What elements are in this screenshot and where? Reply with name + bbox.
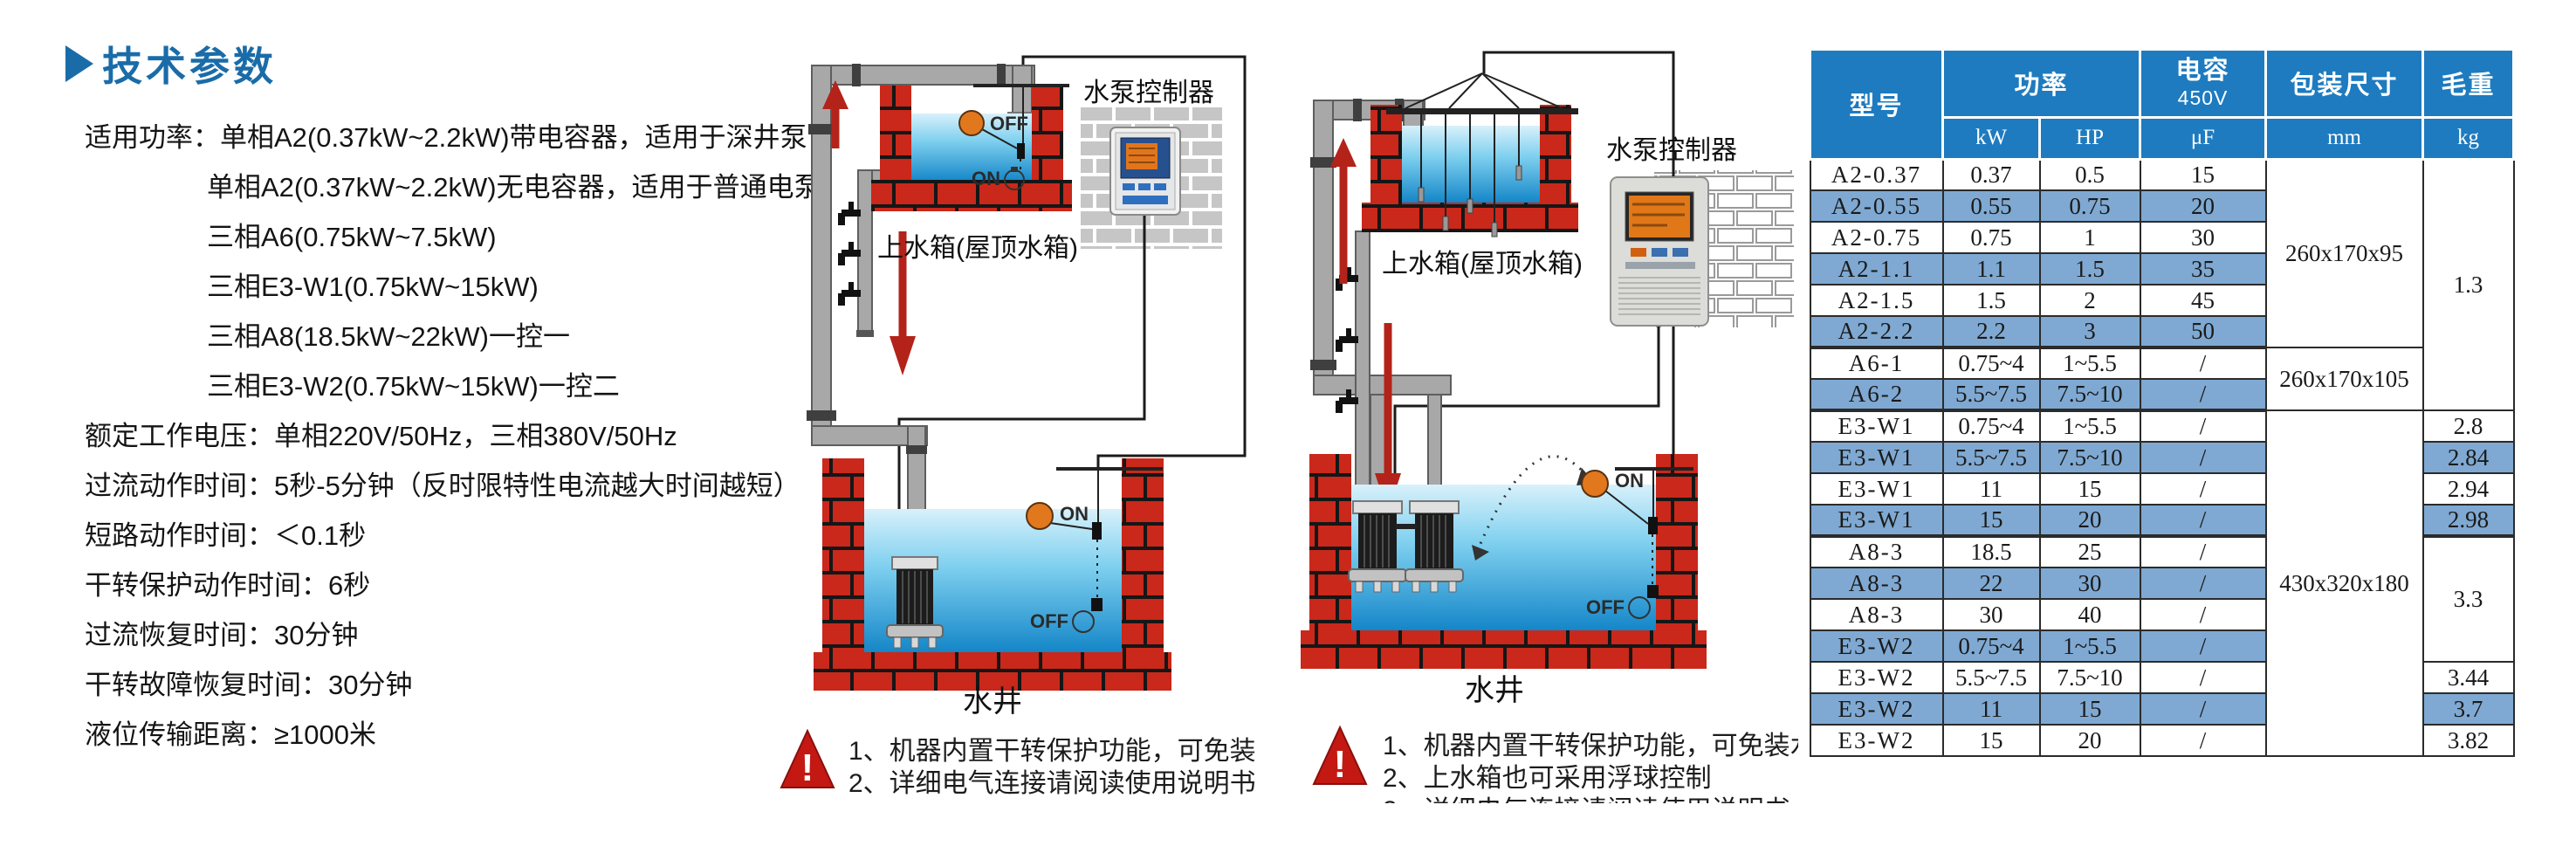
col-header-power: 功率 bbox=[1943, 51, 2140, 117]
spec-line: 干转保护动作时间：6秒 bbox=[65, 558, 773, 608]
spec-line: 单相A2(0.37kW~2.2kW)无电容器，适用于普通电泵 bbox=[65, 160, 773, 210]
well-float-off-label: OFF bbox=[1030, 610, 1068, 632]
spec-line: 干转故障恢复时间：30分钟 bbox=[65, 657, 773, 707]
page-title: 技术参数 bbox=[65, 38, 773, 89]
well-float-on-label: ON bbox=[1615, 470, 1644, 492]
warning-exclamation: ! bbox=[1334, 743, 1347, 786]
col-header-capacitance: 电容 450V bbox=[2140, 51, 2266, 117]
roof-tank bbox=[1362, 73, 1578, 237]
controller-label: 水泵控制器 bbox=[1083, 79, 1214, 107]
spec-line: 三相E3-W2(0.75kW~15kW)一控二 bbox=[65, 359, 773, 409]
spec-sheet-page: 技术参数 适用功率：单相A2(0.37kW~2.2kW)带电容器，适用于深井泵 … bbox=[0, 0, 2576, 853]
size-a2-cell: 260x170x95 bbox=[2266, 159, 2423, 347]
pump-controller bbox=[1110, 127, 1180, 215]
unit-hp: HP bbox=[2040, 117, 2140, 159]
weight-a8-cell: 3.3 bbox=[2423, 536, 2514, 662]
controller-button bbox=[1154, 183, 1166, 190]
float-ball-icon bbox=[1027, 503, 1053, 529]
note-line: 3、详细电气连接请阅读使用说明书 bbox=[1383, 796, 1790, 803]
section-technical-parameters: 技术参数 适用功率：单相A2(0.37kW~2.2kW)带电容器，适用于深井泵 … bbox=[65, 38, 773, 757]
section-marker-icon bbox=[65, 45, 93, 82]
col-header-weight: 毛重 bbox=[2423, 51, 2514, 117]
controller-button bbox=[1631, 248, 1646, 257]
well-float-off-label: OFF bbox=[1586, 596, 1625, 618]
diagram-single-pump-installation: OFF ON 上水箱(屋顶水箱) 水泵控制器 bbox=[768, 35, 1257, 803]
spec-line: 液位传输距离：≥1000米 bbox=[65, 707, 773, 757]
spec-line: 额定工作电压：单相220V/50Hz，三相380V/50Hz bbox=[65, 409, 773, 458]
table-row: E3-W10.75~41~5.5/ 430x320x180 2.8 bbox=[1810, 410, 2514, 442]
note-line: 1、机器内置干转保护功能，可免装水井浮球 bbox=[1383, 732, 1798, 760]
size-large-cell: 430x320x180 bbox=[2266, 410, 2423, 756]
pump-controller bbox=[1611, 177, 1708, 326]
well: ON OFF bbox=[1301, 454, 1707, 669]
unit-kw: kW bbox=[1943, 117, 2040, 159]
size-a6-cell: 260x170x105 bbox=[2266, 347, 2423, 410]
cap-title: 电容 bbox=[2142, 57, 2263, 86]
tank-label: 上水箱(屋顶水箱) bbox=[877, 234, 1078, 263]
well-float-on-label: ON bbox=[1060, 503, 1089, 525]
spec-table: 型号 功率 电容 450V 包装尺寸 毛重 kW HP μF mm kg bbox=[1809, 51, 2515, 757]
note-line: 2、详细电气连接请阅读使用说明书 bbox=[848, 769, 1256, 798]
tank-float-off-label: OFF bbox=[990, 113, 1028, 134]
tank-float-on-label: ON bbox=[972, 168, 1000, 189]
cap-voltage: 450V bbox=[2142, 86, 2263, 109]
controller-button bbox=[1123, 183, 1135, 190]
pump-power-wire bbox=[899, 215, 1144, 557]
diagram-dual-pump-installation: 上水箱(屋顶水箱) 水泵控制器 bbox=[1274, 35, 1798, 803]
spec-line: 三相A8(18.5kW~22kW)一控一 bbox=[65, 309, 773, 359]
tank-label: 上水箱(屋顶水箱) bbox=[1382, 250, 1583, 279]
well-label: 水井 bbox=[1465, 674, 1524, 707]
weight-a2-a6-cell: 1.3 bbox=[2423, 159, 2514, 410]
controller-button bbox=[1652, 248, 1667, 257]
well: ON OFF bbox=[814, 458, 1171, 691]
controller-button bbox=[1673, 248, 1688, 257]
table-row: A6-10.75~41~5.5/ 260x170x105 bbox=[1810, 347, 2514, 379]
unit-kg: kg bbox=[2423, 117, 2514, 159]
unit-mm: mm bbox=[2266, 117, 2423, 159]
controller-label: 水泵控制器 bbox=[1606, 136, 1737, 165]
col-header-model: 型号 bbox=[1810, 51, 1943, 159]
spec-line: 适用功率：单相A2(0.37kW~2.2kW)带电容器，适用于深井泵 bbox=[65, 110, 773, 160]
controller-button bbox=[1138, 183, 1151, 190]
well-label: 水井 bbox=[963, 685, 1022, 719]
roof-tank: OFF ON bbox=[871, 86, 1072, 211]
spec-table-section: 型号 功率 电容 450V 包装尺寸 毛重 kW HP μF mm kg bbox=[1809, 51, 2515, 757]
spec-list: 适用功率：单相A2(0.37kW~2.2kW)带电容器，适用于深井泵 单相A2(… bbox=[65, 110, 773, 757]
page-title-text: 技术参数 bbox=[102, 35, 277, 93]
note-line: 2、上水箱也可采用浮球控制 bbox=[1383, 764, 1712, 793]
spec-line: 三相E3-W1(0.75kW~15kW) bbox=[65, 259, 773, 309]
warning-exclamation: ! bbox=[801, 746, 814, 789]
float-ball-icon bbox=[959, 111, 984, 135]
spec-line: 三相A6(0.75kW~7.5kW) bbox=[65, 210, 773, 259]
note-line: 1、机器内置干转保护功能，可免装水井探头/浮球 bbox=[848, 737, 1257, 766]
table-row: A2-0.370.370.515 260x170x95 1.3 bbox=[1810, 159, 2514, 190]
warning-notes: ! 1、机器内置干转保护功能，可免装水井探头/浮球 2、详细电气连接请阅读使用说… bbox=[781, 731, 1257, 798]
unit-uf: μF bbox=[2140, 117, 2266, 159]
spec-line: 过流动作时间：5秒-5分钟（反时限特性电流越大时间越短） bbox=[65, 458, 773, 508]
spec-line: 短路动作时间：＜0.1秒 bbox=[65, 508, 773, 558]
warning-notes: ! 1、机器内置干转保护功能，可免装水井浮球 2、上水箱也可采用浮球控制 3、详… bbox=[1314, 727, 1798, 803]
col-header-size: 包装尺寸 bbox=[2266, 51, 2423, 117]
float-ball-icon bbox=[1582, 471, 1608, 497]
spec-line: 过流恢复时间：30分钟 bbox=[65, 608, 773, 657]
